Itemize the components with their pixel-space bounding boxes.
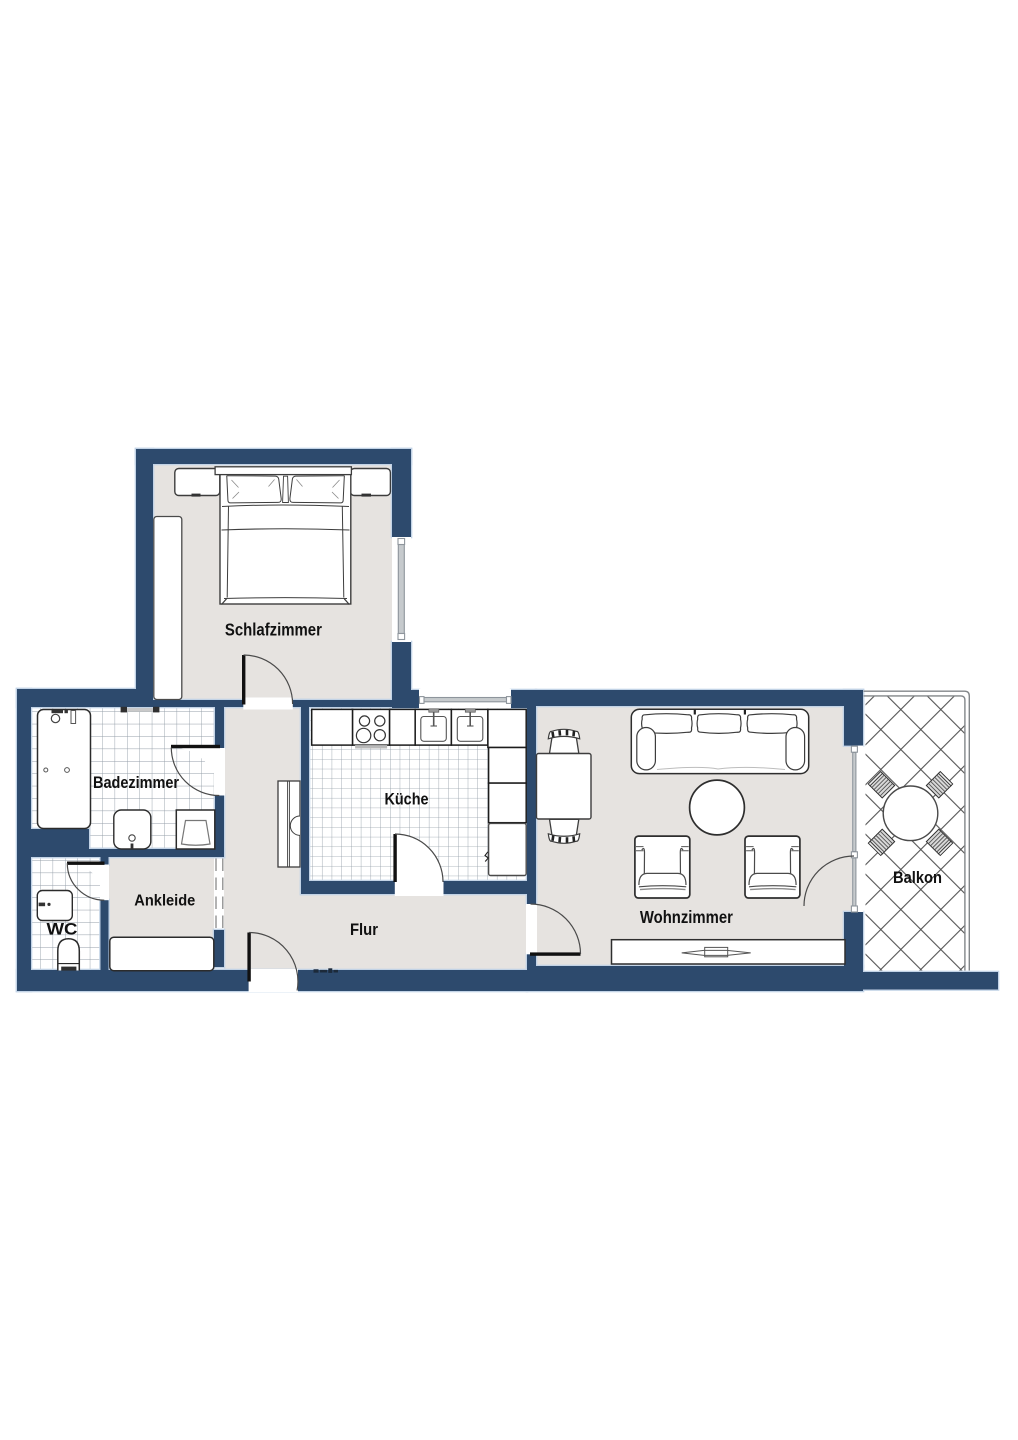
svg-text:Balkon: Balkon (893, 869, 942, 887)
svg-text:Schlafzimmer: Schlafzimmer (225, 620, 322, 640)
svg-text:Wohnzimmer: Wohnzimmer (640, 907, 733, 927)
svg-text:WC: WC (47, 920, 78, 939)
svg-text:Badezimmer: Badezimmer (93, 773, 179, 792)
svg-text:Küche: Küche (385, 790, 429, 809)
svg-text:Ankleide: Ankleide (134, 893, 195, 910)
svg-text:Flur: Flur (350, 921, 379, 939)
